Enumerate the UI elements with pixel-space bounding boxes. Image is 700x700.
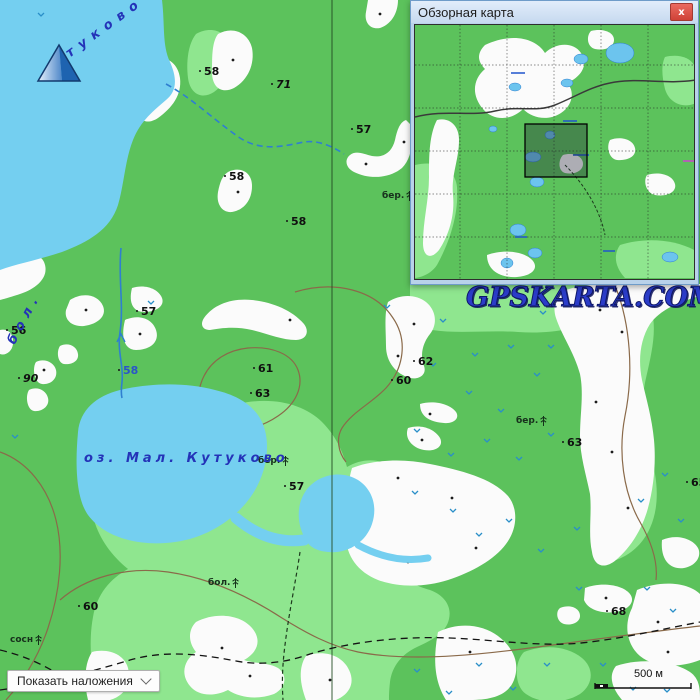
spot-height: 65 [686,476,700,489]
vegetation-label: бер. [516,416,547,426]
spot-height: 57 [351,123,371,136]
spot-height: 90 [18,372,38,385]
vegetation-label-text: бол. [208,578,230,588]
vegetation-label-text: бер. [516,416,538,426]
spot-height: 57 [136,305,156,318]
vegetation-label: бол. [208,578,239,588]
vegetation-label: бер. [382,191,413,201]
tree-icon [232,578,239,588]
vegetation-label-text: сосн [10,635,33,645]
spot-height: 68 [606,605,626,618]
overview-map-panel: Обзорная карта x [410,0,699,285]
scale-bar-label: 500 м [634,668,696,680]
spot-height: 63 [250,387,270,400]
overview-panel-titlebar[interactable]: Обзорная карта x [411,1,698,23]
map-viewer: 58 71 57 58 58 57 56 90 61 63 62 60 63 6… [0,0,700,700]
spot-height: 57 [284,480,304,493]
show-overlays-button[interactable]: Показать наложения [7,670,160,692]
tree-icon [540,416,547,426]
vegetation-label-text: бер. [382,191,404,201]
scale-bar-line [592,680,696,692]
gpskarta-watermark: GPSKARTA.COM [466,282,700,313]
spot-height: 58 [199,65,219,78]
overview-minimap-canvas[interactable] [415,25,695,279]
chevron-down-icon [140,673,151,684]
lake-name-mal-kutukovo: оз. Мал. Кутуково [84,451,289,466]
overview-viewport[interactable] [525,124,587,177]
tree-icon [35,635,42,645]
scale-bar: 500 м [592,668,696,692]
vegetation-label: сосн [10,635,42,645]
spot-height: 58 [224,170,244,183]
spot-height: 60 [391,374,411,387]
overview-panel-title: Обзорная карта [418,5,514,20]
show-overlays-label: Показать наложения [17,674,133,688]
spot-height: 61 [253,362,273,375]
water-level-label: 58 [118,364,138,377]
spot-height: 58 [286,215,306,228]
spot-height: 60 [78,600,98,613]
overview-minimap[interactable] [414,24,695,280]
spot-height: 63 [562,436,582,449]
close-icon[interactable]: x [670,3,693,21]
spot-height: 71 [271,78,291,91]
spot-height: 62 [413,355,433,368]
